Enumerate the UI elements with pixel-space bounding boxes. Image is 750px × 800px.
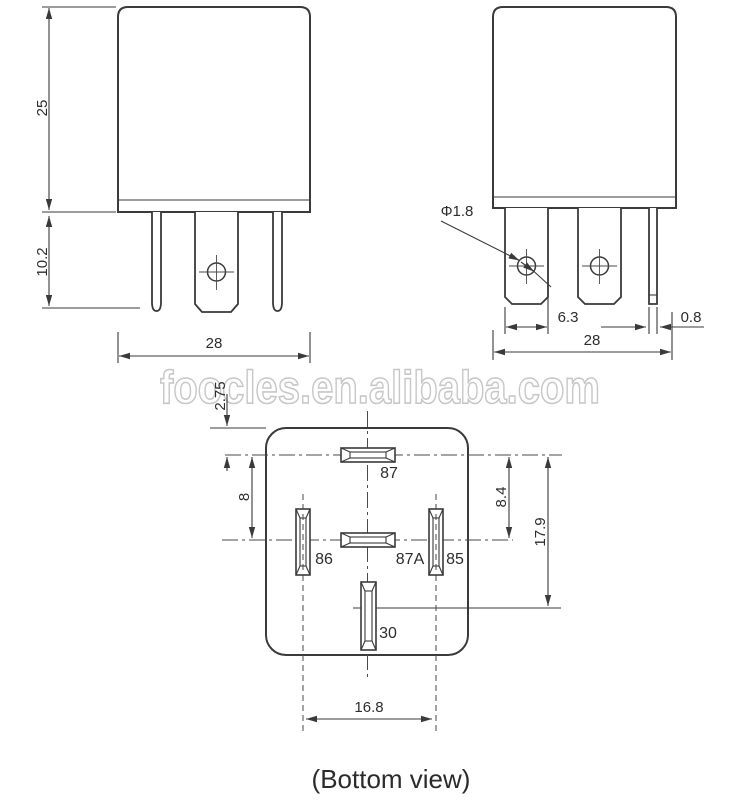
dim-blade-width: 6.3 (558, 309, 579, 326)
dim-row-gap-right: 8.4 (493, 487, 510, 508)
side-view: Φ1.8 6.3 0.8 28 (441, 7, 704, 360)
relay-dimension-drawing: foocles.en.alibaba.com 25 10.2 28 (0, 0, 750, 800)
side-pin-thin (649, 208, 657, 304)
pin-86-blade (296, 509, 310, 575)
pin-87-blade (341, 448, 395, 462)
pin-label-87a: 87A (396, 551, 425, 568)
bottom-view: 87 86 87A 85 30 2.75 8 8.4 17.9 16.8 (210, 381, 562, 731)
pin-30-blade (361, 582, 376, 650)
dim-pin-span-horizontal: 16.8 (354, 699, 383, 716)
pin-label-87: 87 (380, 465, 398, 482)
dim-front-width: 28 (206, 335, 223, 352)
pin-87a-blade (341, 533, 395, 547)
front-view: 25 10.2 28 (34, 7, 310, 363)
view-caption: (Bottom view) (312, 764, 471, 794)
dim-side-width: 28 (584, 332, 601, 349)
dim-thin-pin-width: 0.8 (681, 309, 702, 326)
front-pin-left (152, 212, 161, 311)
dim-pin87-offset: 2.75 (212, 381, 229, 410)
dim-hole-diameter: Φ1.8 (441, 203, 474, 220)
front-pin-right (273, 212, 282, 311)
dim-front-pin-length: 10.2 (34, 247, 51, 276)
dim-pin-span-vertical: 17.9 (532, 517, 549, 546)
pin-label-30: 30 (379, 625, 397, 642)
dim-row-gap-left: 8 (236, 493, 253, 501)
drawing-canvas: foocles.en.alibaba.com 25 10.2 28 (0, 0, 750, 800)
pin-label-86: 86 (315, 551, 333, 568)
front-body (118, 7, 310, 212)
dim-front-height: 25 (34, 100, 51, 117)
side-body (493, 7, 676, 208)
pin-85-blade (429, 509, 443, 575)
pin-label-85: 85 (446, 551, 464, 568)
